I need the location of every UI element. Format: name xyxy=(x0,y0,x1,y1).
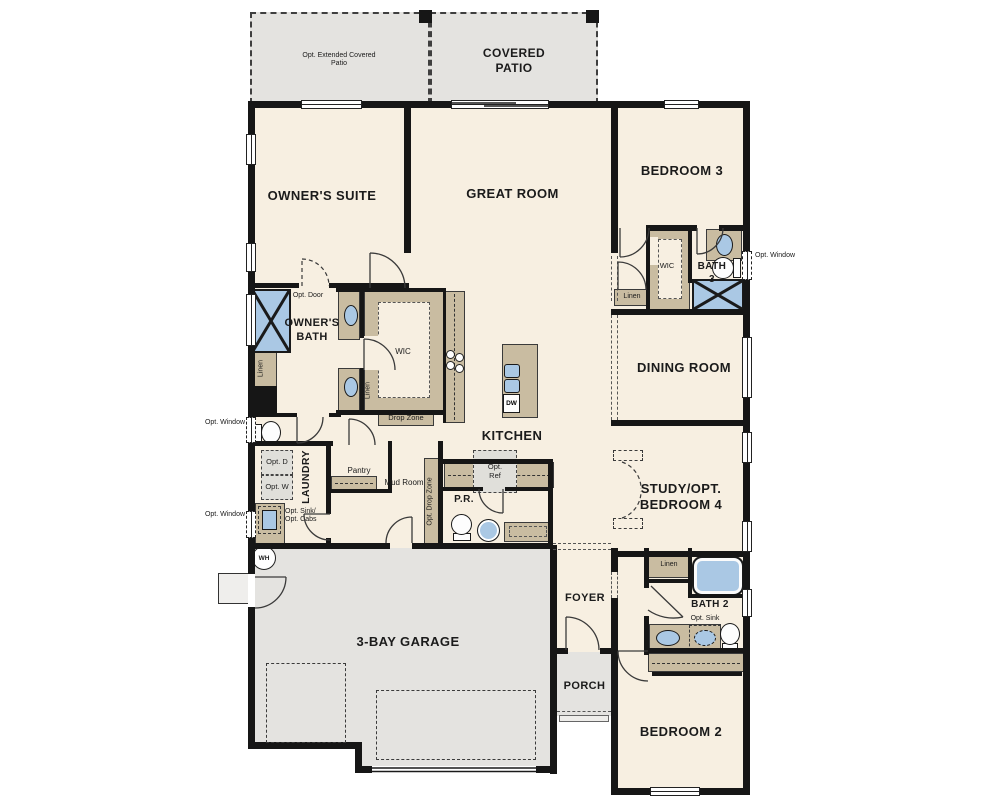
island-sink-basin-2 xyxy=(504,379,520,393)
wall xyxy=(688,594,748,598)
room-label-great-room: GREAT ROOM xyxy=(465,186,560,202)
bath2-sink xyxy=(656,630,680,646)
room-label-garage: 3-BAY GARAGE xyxy=(328,634,488,650)
garage-side-door-opening xyxy=(248,574,255,607)
room-label-bedroom2: BEDROOM 2 xyxy=(626,724,736,740)
wall xyxy=(251,283,299,288)
cooktop-burner xyxy=(446,361,455,370)
window xyxy=(246,134,256,165)
garage-bay-outline xyxy=(266,663,346,743)
laundry-opt-sink-outline xyxy=(258,506,281,534)
label-mud-room: Mud Room xyxy=(382,478,426,488)
window xyxy=(301,100,362,109)
cased-opening xyxy=(553,543,611,550)
garage-bay-outline xyxy=(376,690,536,760)
opt-window-bath3 xyxy=(742,251,752,280)
label-linen-bedroom3: Linen xyxy=(614,293,650,301)
room-label-pr: P.R. xyxy=(446,494,482,507)
wall xyxy=(652,672,742,676)
wall xyxy=(329,413,341,417)
label-bedroom3-wic: WIC xyxy=(648,261,686,270)
owners-bath-sink-2 xyxy=(344,377,358,397)
label-opt-door: Opt. Door xyxy=(292,292,324,300)
room-label-owners-bath: OWNER'S BATH xyxy=(274,317,350,345)
covered-patio-label: COVERED PATIO xyxy=(468,46,560,76)
wall xyxy=(646,579,690,583)
label-linen-owners-closet: Linen xyxy=(258,350,271,388)
label-pantry: Pantry xyxy=(336,466,382,476)
owners-wic-doorway xyxy=(364,336,379,370)
cased-opening xyxy=(611,315,618,420)
room-label-bedroom3: BEDROOM 3 xyxy=(622,163,742,179)
wall xyxy=(611,598,618,795)
window xyxy=(742,589,752,617)
wall xyxy=(548,459,553,549)
patio-post xyxy=(586,10,599,23)
wall xyxy=(293,413,297,417)
wall xyxy=(550,545,557,774)
wall xyxy=(550,648,568,654)
wall xyxy=(611,551,750,557)
label-drop-zone: Drop Zone xyxy=(378,413,434,422)
water-heater: WH xyxy=(252,546,276,570)
room-label-dining-room: DINING ROOM xyxy=(624,360,744,376)
wall xyxy=(360,288,364,338)
room-label-bath2: BATH 2 xyxy=(680,599,740,612)
garage-door-opening xyxy=(372,766,536,773)
label-owners-wic: WIC xyxy=(378,347,428,357)
floor-plan: Opt. Extended Covered Patio COVERED PATI… xyxy=(0,0,1000,800)
opt-extended-patio-label: Opt. Extended Covered Patio xyxy=(299,52,379,69)
porch-step xyxy=(559,715,609,722)
wall-block xyxy=(249,386,277,414)
wall xyxy=(251,441,333,446)
pantry-shelf xyxy=(331,476,377,490)
window xyxy=(650,787,700,796)
opt-dryer: Opt. D xyxy=(261,450,293,475)
wall xyxy=(611,101,618,253)
opt-study-door-panel xyxy=(613,450,643,461)
wall xyxy=(688,548,692,598)
bath2-toilet xyxy=(720,623,740,645)
wall xyxy=(360,368,364,412)
opt-window-laundry xyxy=(246,511,256,538)
label-opt-window-wc: Opt. Window xyxy=(204,419,246,427)
foyer-bench xyxy=(504,522,552,542)
room-label-bath3: BATH 3 xyxy=(694,261,730,286)
pr-pedestal-sink xyxy=(477,519,500,542)
cooktop-burner xyxy=(455,364,464,373)
porch-edge-dashed xyxy=(557,711,611,712)
wall xyxy=(443,288,446,423)
label-linen-owners-cabinet: Linen xyxy=(365,372,378,410)
label-opt-window-bath3: Opt. Window xyxy=(754,252,796,260)
bath3-sink xyxy=(716,234,733,256)
patio-post xyxy=(419,10,432,23)
opt-washer: Opt. W xyxy=(261,475,293,500)
window xyxy=(664,100,699,109)
bath2-bathtub xyxy=(692,556,744,596)
label-laundry-opt-sink: Opt. Sink/Opt. Cabs xyxy=(285,508,339,525)
cooktop-burner xyxy=(446,350,455,359)
wall xyxy=(611,420,750,426)
dishwasher: DW xyxy=(503,394,520,413)
wall xyxy=(441,487,483,491)
room-label-owners-suite: OWNER'S SUITE xyxy=(262,188,382,204)
opt-window-owners-wc xyxy=(246,417,256,443)
bath2-opt-sink xyxy=(694,630,716,646)
wall xyxy=(326,441,331,514)
opt-study-door-panel xyxy=(613,518,643,529)
wall xyxy=(719,225,750,231)
wall xyxy=(248,543,390,549)
window xyxy=(742,521,752,552)
window xyxy=(246,294,256,346)
wall xyxy=(688,225,692,283)
label-laundry: LAUNDRY xyxy=(300,445,316,509)
wall xyxy=(404,101,411,253)
room-label-study: STUDY/OPT. BEDROOM 4 xyxy=(626,481,736,514)
room-label-kitchen: KITCHEN xyxy=(464,428,560,444)
wall xyxy=(336,288,444,292)
label-bath2-opt-sink: Opt. Sink xyxy=(682,615,728,623)
window xyxy=(742,432,752,463)
wall xyxy=(505,487,551,491)
wall xyxy=(248,742,362,749)
room-label-porch: PORCH xyxy=(557,680,612,694)
room-label-foyer: FOYER xyxy=(558,592,612,606)
bath3-toilet-tank xyxy=(733,258,741,278)
wall xyxy=(412,543,552,549)
wall xyxy=(646,648,748,653)
wall xyxy=(611,309,750,315)
label-opt-drop-zone: Opt. Drop Zone xyxy=(427,462,440,542)
wall xyxy=(329,489,392,493)
bedroom2-closet xyxy=(648,653,744,672)
wall xyxy=(441,459,553,464)
label-linen-bath2: Linen xyxy=(648,561,690,569)
label-opt-window-laundry: Opt. Window xyxy=(204,511,246,519)
cased-opening xyxy=(611,572,618,598)
sliding-door xyxy=(451,100,549,109)
wall xyxy=(600,648,618,654)
island-sink-basin-1 xyxy=(504,364,520,378)
window xyxy=(246,243,256,272)
pr-toilet xyxy=(451,514,472,535)
cooktop-burner xyxy=(455,353,464,362)
